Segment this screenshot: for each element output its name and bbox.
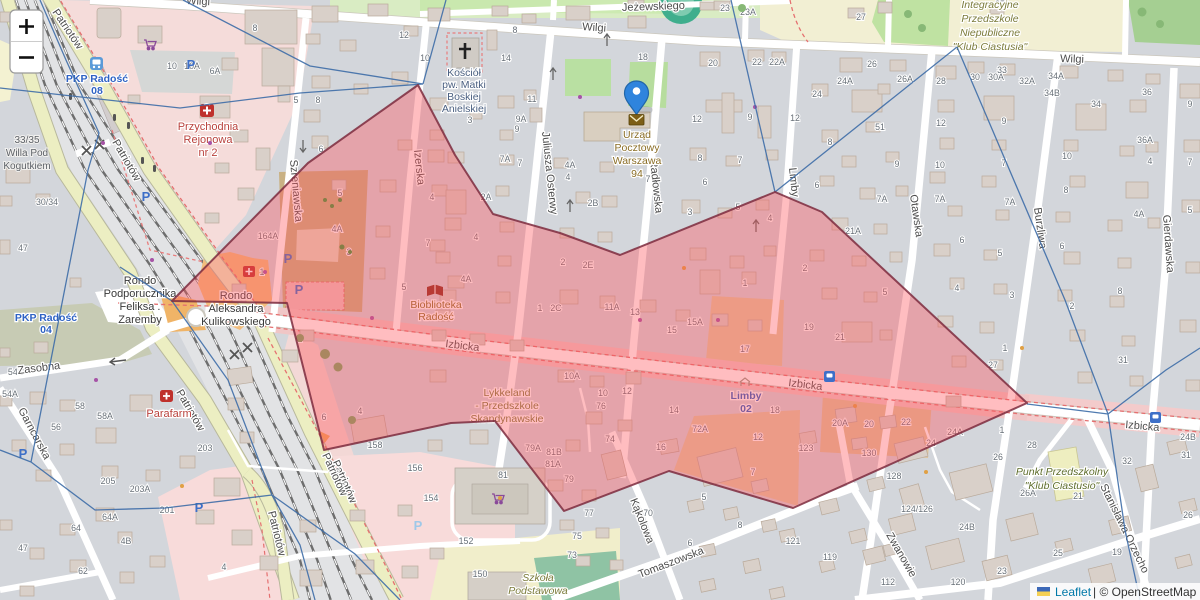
svg-text:P: P [414, 518, 423, 533]
svg-text:28: 28 [936, 76, 946, 86]
svg-text:81: 81 [498, 470, 508, 480]
svg-text:9: 9 [895, 159, 900, 169]
svg-text:203: 203 [198, 443, 213, 453]
svg-text:7A: 7A [877, 194, 888, 204]
svg-text:5: 5 [294, 95, 299, 105]
svg-text:Przychodnia: Przychodnia [178, 121, 239, 133]
svg-text:5: 5 [702, 492, 707, 502]
svg-text:3: 3 [468, 115, 473, 125]
svg-text:4: 4 [566, 172, 571, 182]
svg-text:34B: 34B [1044, 88, 1060, 98]
svg-text:30/34: 30/34 [36, 197, 58, 207]
svg-text:4B: 4B [121, 536, 132, 546]
svg-text:6: 6 [815, 180, 820, 190]
svg-text:7: 7 [1188, 157, 1193, 167]
svg-text:Feliksa .: Feliksa . [120, 301, 161, 313]
svg-text:12: 12 [692, 114, 702, 124]
svg-text:Urząd: Urząd [623, 129, 651, 141]
svg-text:23: 23 [720, 3, 730, 13]
svg-text:Warszawa: Warszawa [613, 155, 662, 167]
svg-text:26: 26 [1183, 510, 1193, 520]
svg-text:Jeżewskiego: Jeżewskiego [622, 0, 685, 14]
svg-text:Podporucznika: Podporucznika [104, 288, 178, 300]
svg-text:Kulikowskiego: Kulikowskiego [201, 316, 271, 328]
svg-text:24B: 24B [1180, 432, 1196, 442]
svg-text:5: 5 [1188, 205, 1193, 215]
svg-text:33: 33 [997, 65, 1007, 75]
svg-text:18: 18 [638, 52, 648, 62]
svg-text:8: 8 [828, 137, 833, 147]
svg-text:205: 205 [101, 476, 116, 486]
svg-text:04: 04 [40, 324, 52, 336]
svg-text:47: 47 [18, 243, 28, 253]
svg-text:2: 2 [1070, 301, 1075, 311]
svg-text:8: 8 [738, 520, 743, 530]
svg-text:Pocztowy: Pocztowy [615, 142, 661, 154]
svg-text:33/35: 33/35 [14, 135, 39, 146]
svg-text:64A: 64A [102, 512, 118, 522]
svg-text:94: 94 [631, 168, 643, 180]
svg-text:12: 12 [399, 30, 409, 40]
svg-text:24B: 24B [959, 522, 975, 532]
svg-text:Boskiej: Boskiej [447, 91, 481, 103]
svg-text:Niepubliczne: Niepubliczne [960, 27, 1020, 39]
svg-text:Wilgi: Wilgi [582, 21, 607, 35]
svg-text:24A: 24A [837, 76, 853, 86]
svg-text:6: 6 [688, 538, 693, 548]
svg-text:112: 112 [881, 577, 895, 587]
svg-text:32A: 32A [1019, 76, 1035, 86]
svg-text:152: 152 [459, 536, 474, 546]
svg-text:56: 56 [51, 422, 61, 432]
svg-text:12: 12 [936, 118, 946, 128]
svg-text:58: 58 [75, 401, 85, 411]
svg-text:"Klub Ciastusio": "Klub Ciastusio" [1025, 480, 1101, 492]
svg-text:34: 34 [1091, 99, 1101, 109]
svg-text:9A: 9A [516, 114, 527, 124]
svg-text:9: 9 [748, 112, 753, 122]
svg-text:119: 119 [823, 552, 837, 562]
svg-text:24: 24 [812, 89, 822, 99]
svg-text:P: P [142, 189, 151, 204]
svg-text:62: 62 [78, 566, 88, 576]
svg-text:8: 8 [253, 23, 258, 33]
svg-text:120: 120 [951, 577, 966, 587]
svg-text:Wilgi: Wilgi [186, 0, 210, 8]
svg-text:"Klub Ciastusia": "Klub Ciastusia" [953, 41, 1029, 53]
svg-text:36A: 36A [1137, 135, 1153, 145]
svg-text:32: 32 [1122, 456, 1132, 466]
svg-text:22: 22 [752, 57, 762, 67]
svg-text:PKP Radość: PKP Radość [15, 312, 77, 324]
svg-text:4: 4 [1148, 156, 1153, 166]
svg-text:1: 1 [1003, 343, 1008, 353]
svg-text:8: 8 [1118, 286, 1123, 296]
svg-text:Zaremby: Zaremby [118, 314, 162, 326]
svg-text:8: 8 [1064, 185, 1069, 195]
svg-text:2B: 2B [588, 198, 599, 208]
svg-text:23: 23 [997, 566, 1007, 576]
svg-text:8: 8 [513, 25, 518, 35]
svg-text:128: 128 [887, 471, 902, 481]
svg-text:203A: 203A [130, 484, 151, 494]
svg-text:47: 47 [18, 543, 28, 553]
svg-text:75: 75 [572, 531, 582, 541]
svg-text:7A: 7A [935, 194, 946, 204]
svg-text:Punkt Przedszkolny: Punkt Przedszkolny [1016, 466, 1109, 478]
svg-text:Szkoła: Szkoła [522, 572, 554, 584]
svg-text:1: 1 [1000, 425, 1005, 435]
svg-text:9: 9 [1002, 116, 1007, 126]
svg-text:10: 10 [935, 160, 945, 170]
svg-text:34A: 34A [1048, 71, 1064, 81]
svg-text:Kościół: Kościół [447, 67, 482, 79]
svg-text:28: 28 [1027, 440, 1037, 450]
svg-text:26: 26 [867, 59, 877, 69]
svg-text:19: 19 [1112, 547, 1122, 557]
svg-text:Aleksandra: Aleksandra [208, 303, 264, 315]
svg-text:7A: 7A [1005, 197, 1016, 207]
svg-text:4A: 4A [1134, 209, 1145, 219]
svg-text:3: 3 [688, 207, 693, 217]
svg-text:10: 10 [1062, 151, 1072, 161]
svg-text:14: 14 [501, 53, 511, 63]
svg-text:pw. Matki: pw. Matki [442, 79, 486, 91]
svg-text:121: 121 [786, 536, 801, 546]
svg-text:154: 154 [424, 493, 439, 503]
svg-text:Parafarm: Parafarm [146, 408, 191, 420]
svg-text:08: 08 [91, 85, 103, 97]
svg-text:6: 6 [1060, 241, 1065, 251]
svg-text:7: 7 [1002, 158, 1007, 168]
svg-text:Leaflet: Leaflet [1055, 585, 1092, 599]
svg-text:P: P [187, 57, 196, 72]
svg-text:Anielskiej: Anielskiej [442, 103, 486, 115]
svg-text:25: 25 [1053, 548, 1063, 558]
svg-text:7A: 7A [500, 154, 511, 164]
svg-text:54A: 54A [2, 389, 18, 399]
svg-text:6: 6 [960, 235, 965, 245]
svg-text:9: 9 [1188, 99, 1193, 109]
svg-text:58A: 58A [97, 411, 113, 421]
svg-text:64: 64 [71, 523, 81, 533]
svg-text:4A: 4A [565, 160, 576, 170]
svg-text:| © OpenStreetMap: | © OpenStreetMap [1093, 585, 1197, 599]
svg-text:31: 31 [1118, 355, 1128, 365]
svg-text:Podstawowa: Podstawowa [508, 585, 568, 597]
svg-text:11: 11 [527, 94, 536, 104]
svg-text:4: 4 [222, 562, 227, 572]
svg-text:26: 26 [993, 452, 1003, 462]
svg-text:Willa Pod: Willa Pod [6, 148, 48, 159]
svg-text:20: 20 [708, 58, 718, 68]
svg-text:7: 7 [518, 158, 523, 168]
svg-text:26A: 26A [897, 74, 913, 84]
svg-text:158: 158 [368, 440, 383, 450]
svg-text:124/126: 124/126 [901, 504, 933, 514]
svg-text:7: 7 [738, 155, 743, 165]
svg-text:3: 3 [1010, 290, 1015, 300]
svg-text:10: 10 [167, 61, 177, 71]
svg-text:8: 8 [698, 153, 703, 163]
svg-text:Wilgi: Wilgi [1060, 53, 1084, 66]
svg-text:36: 36 [1142, 87, 1152, 97]
svg-text:156: 156 [408, 463, 423, 473]
svg-text:P: P [195, 500, 204, 515]
svg-text:Kogutkiem: Kogutkiem [3, 161, 50, 172]
svg-text:4: 4 [955, 283, 960, 293]
svg-text:21: 21 [1073, 491, 1083, 501]
svg-text:Integracyjne: Integracyjne [961, 0, 1018, 11]
svg-text:6: 6 [703, 177, 708, 187]
svg-text:nr 2: nr 2 [199, 147, 218, 159]
svg-text:51: 51 [875, 122, 885, 132]
svg-text:12: 12 [790, 113, 800, 123]
svg-text:8: 8 [316, 95, 321, 105]
svg-text:73: 73 [567, 550, 577, 560]
svg-text:5: 5 [998, 248, 1003, 258]
svg-text:Przedszkole: Przedszkole [961, 13, 1018, 25]
svg-text:31: 31 [1181, 450, 1191, 460]
svg-text:22A: 22A [769, 57, 785, 67]
svg-text:6A: 6A [210, 66, 221, 76]
svg-text:27: 27 [856, 12, 866, 22]
svg-text:150: 150 [473, 569, 488, 579]
svg-text:77: 77 [584, 508, 594, 518]
svg-text:Rondo: Rondo [124, 275, 156, 287]
svg-text:9: 9 [515, 124, 520, 134]
